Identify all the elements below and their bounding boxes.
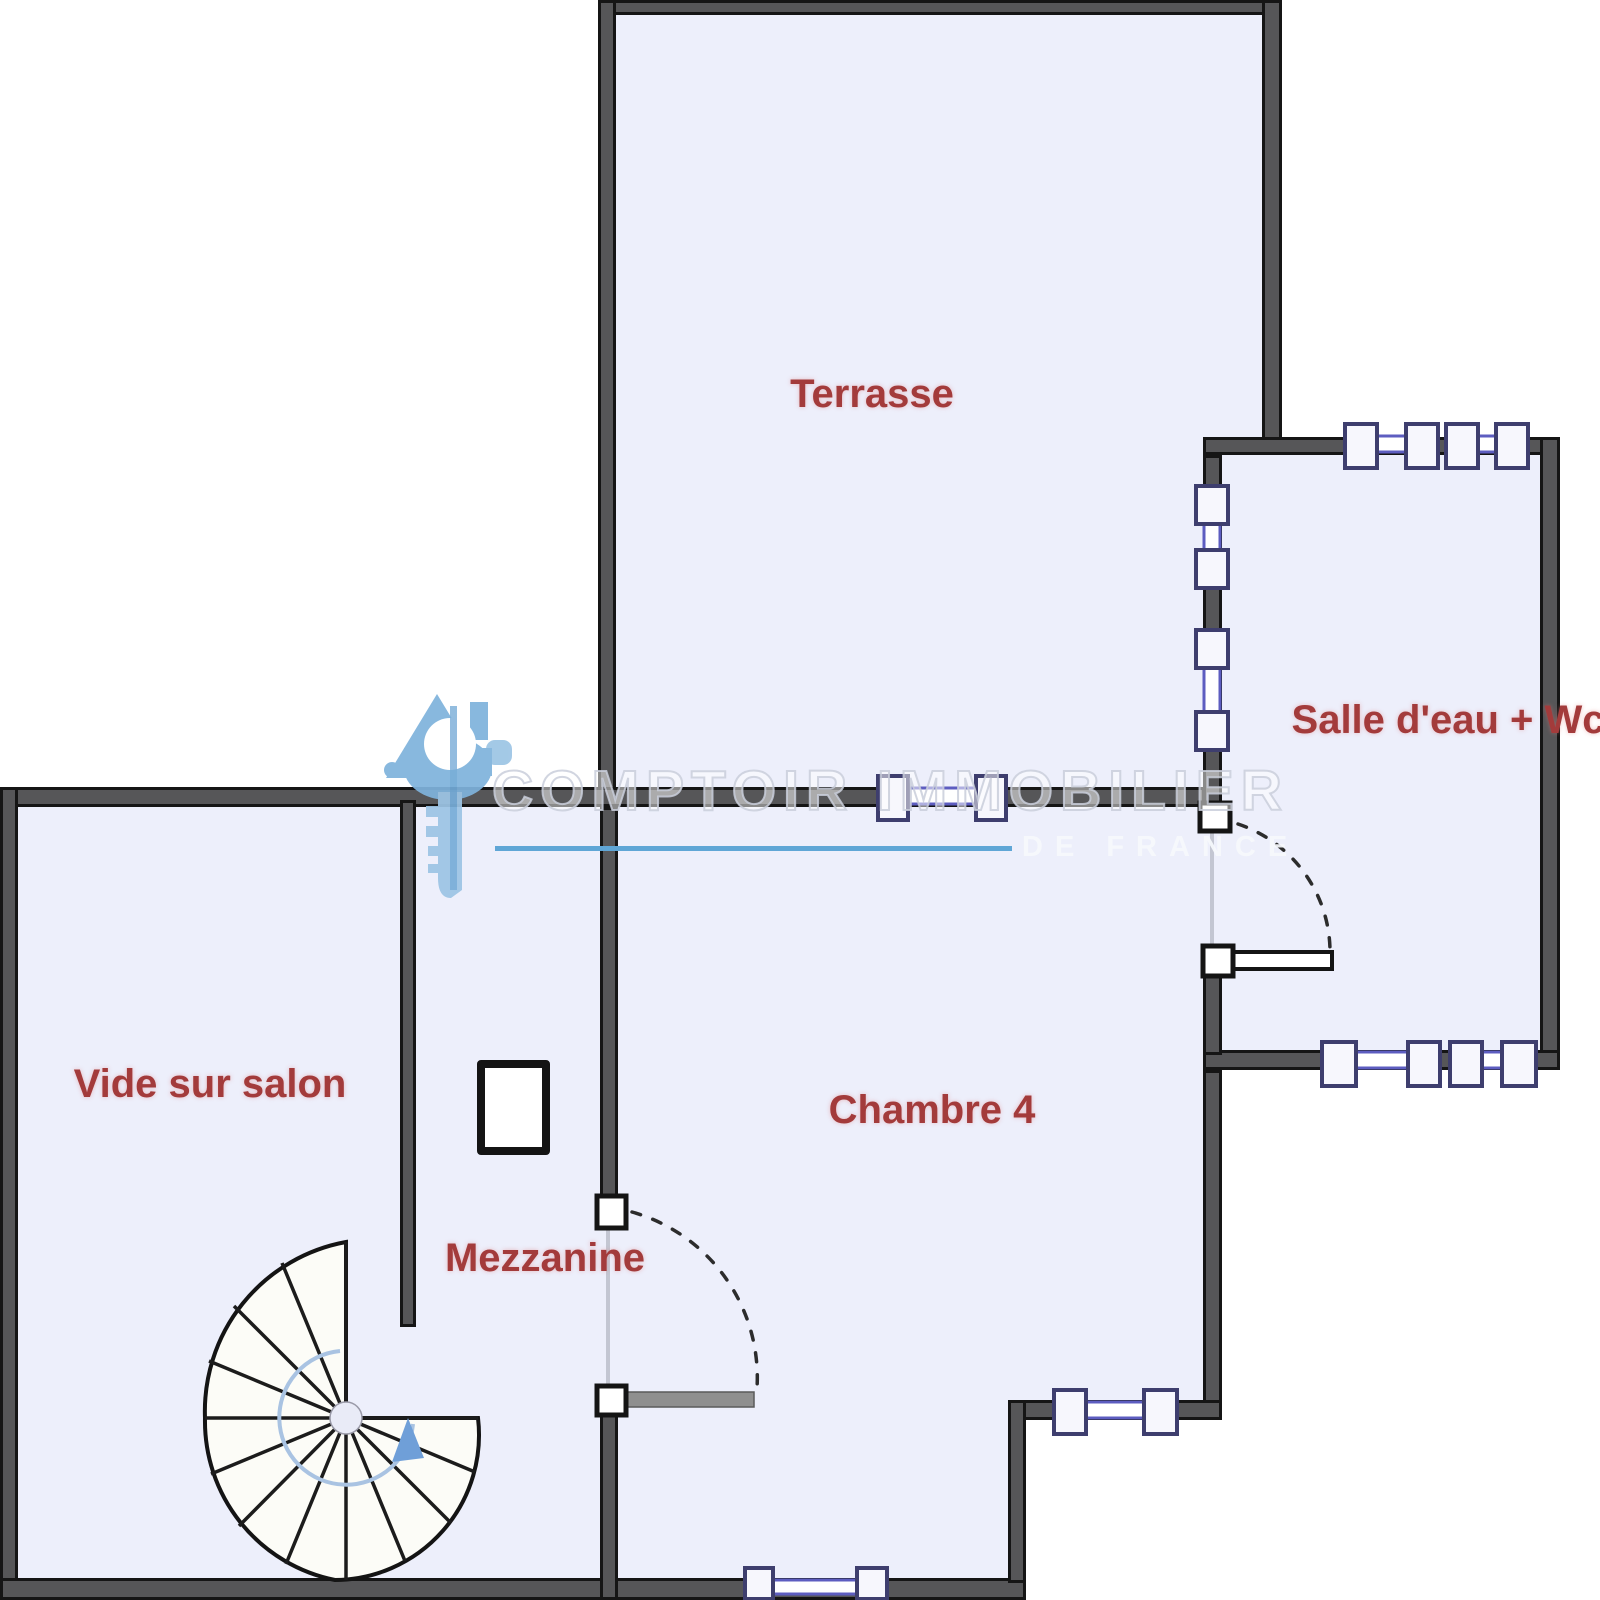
wall-mezzanine-chambre bbox=[600, 807, 618, 1600]
wall-step-horizontal bbox=[1008, 1400, 1222, 1420]
floor-plan: COMPTOIR IMMOBILIER DE FRANCE Terrasse S… bbox=[0, 0, 1600, 1600]
wall-bottom-exterior bbox=[0, 1578, 1026, 1600]
wall-terrasse-top bbox=[598, 0, 1282, 15]
column-mezzanine bbox=[477, 1060, 550, 1155]
wall-salle-deau-left bbox=[1203, 455, 1222, 1055]
wall-left-exterior bbox=[0, 787, 18, 1600]
room-fill-vide-sur-salon bbox=[18, 807, 400, 1580]
room-label-mezzanine: Mezzanine bbox=[445, 1236, 645, 1281]
room-label-terrasse: Terrasse bbox=[790, 372, 954, 417]
wall-chambre-right bbox=[1203, 1070, 1222, 1420]
room-label-chambre-4: Chambre 4 bbox=[829, 1088, 1036, 1133]
watermark-tagline-text: DE FRANCE bbox=[1022, 831, 1299, 864]
wall-salle-deau-right bbox=[1540, 437, 1560, 1070]
watermark-brand-text: COMPTOIR IMMOBILIER bbox=[492, 758, 1289, 824]
watermark-divider-line bbox=[495, 846, 1012, 851]
room-fill-mezzanine bbox=[416, 807, 600, 1580]
wall-terrasse-left bbox=[598, 0, 616, 807]
wall-salle-deau-top bbox=[1203, 437, 1560, 455]
wall-terrasse-right bbox=[1262, 0, 1282, 455]
room-fill-chambre-lower bbox=[618, 1400, 1008, 1580]
wall-vide-mezzanine bbox=[400, 800, 416, 1327]
room-fill-salle-deau bbox=[1222, 455, 1540, 1050]
wall-salle-deau-bottom bbox=[1203, 1050, 1560, 1070]
room-label-salle-deau: Salle d'eau + Wc bbox=[1292, 698, 1600, 743]
room-fill-mezzanine-gap bbox=[400, 1327, 416, 1580]
room-fill-terrasse-lower bbox=[616, 455, 1203, 787]
wall-step-vertical bbox=[1008, 1400, 1026, 1583]
room-label-vide-sur-salon: Vide sur salon bbox=[74, 1062, 347, 1107]
